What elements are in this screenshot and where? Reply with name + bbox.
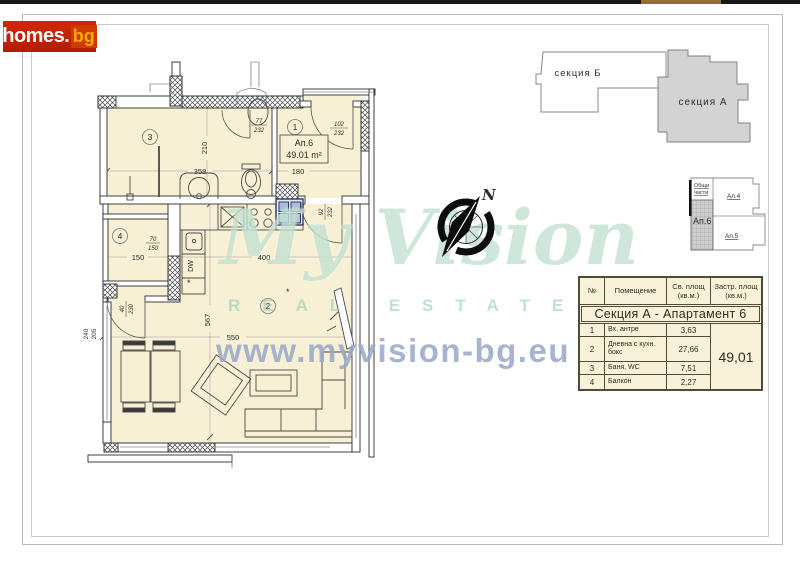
- svg-text:150: 150: [148, 246, 159, 252]
- svg-text:150: 150: [132, 253, 145, 262]
- homes-bg-logo: homes.bg: [3, 21, 96, 52]
- svg-text:40: 40: [120, 305, 126, 312]
- svg-text:92: 92: [319, 208, 325, 215]
- svg-text:567: 567: [203, 314, 212, 327]
- total-area: 49,01: [711, 324, 761, 389]
- svg-text:3: 3: [148, 132, 153, 142]
- row-name: Балкон: [605, 375, 667, 389]
- svg-text:4: 4: [118, 231, 123, 241]
- svg-text:210: 210: [200, 142, 209, 155]
- section-b-shape: [536, 52, 666, 112]
- svg-text:232: 232: [333, 131, 345, 137]
- compass: N: [433, 178, 513, 263]
- col-net-area: Св. площ (кв.м.): [667, 278, 711, 305]
- svg-text:Ап.6: Ап.6: [693, 216, 711, 226]
- col-built-area: Застр. площ (кв.м.): [711, 278, 761, 305]
- section-a-shape: [658, 50, 750, 142]
- svg-text:49.01 m²: 49.01 m²: [286, 150, 322, 160]
- compass-north-label: N: [481, 186, 497, 204]
- floor-plan: 1 2 3 4 Ап.6 49.01 m² 358 210 180 150 40…: [78, 52, 382, 472]
- area-table: № Помещение Св. площ (кв.м.) Застр. площ…: [578, 276, 763, 391]
- area-table-title: Секция А - Апартамент 6: [580, 305, 761, 324]
- svg-text:180: 180: [292, 167, 305, 176]
- svg-text:358: 358: [194, 167, 207, 176]
- row-name: Дневна с кухн. бокс: [605, 337, 667, 362]
- row-num: 1: [580, 324, 605, 337]
- sections-diagram: секция Б секция А: [530, 45, 760, 150]
- col-num: №: [580, 278, 605, 305]
- row-area: 2,27: [667, 375, 711, 389]
- row-name: Вх. антре: [605, 324, 667, 337]
- svg-text:77: 77: [256, 119, 263, 125]
- row-area: 27,66: [667, 337, 711, 362]
- col-room: Помещение: [605, 278, 667, 305]
- svg-text:Ап.6: Ап.6: [295, 138, 313, 148]
- row-area: 3,63: [667, 324, 711, 337]
- svg-text:части: части: [694, 190, 708, 196]
- svg-text:секция Б: секция Б: [555, 68, 602, 79]
- logo-name: homes: [2, 25, 64, 48]
- svg-text:240: 240: [83, 328, 90, 339]
- dishwasher-label: DW: [188, 260, 195, 272]
- logo-dot: .: [64, 25, 70, 48]
- svg-text:102: 102: [334, 122, 345, 128]
- area-table-body: 1 Вх. антре 3,63 2 Дневна с кухн. бокс 2…: [580, 324, 761, 389]
- svg-text:70: 70: [150, 237, 157, 243]
- svg-text:1: 1: [293, 122, 298, 132]
- glass-block-window: [276, 199, 303, 225]
- area-table-header: № Помещение Св. площ (кв.м.) Застр. площ…: [580, 278, 761, 305]
- svg-text:550: 550: [227, 333, 240, 342]
- row-num: 4: [580, 375, 605, 389]
- marker-star: *: [286, 287, 290, 297]
- svg-text:400: 400: [258, 253, 271, 262]
- top-bar-accent: [641, 0, 721, 4]
- marker-star: *: [187, 278, 191, 288]
- unit-label: Ап.6 49.01 m²: [280, 135, 328, 163]
- row-num: 2: [580, 337, 605, 362]
- svg-text:230: 230: [129, 303, 135, 315]
- row-area: 7,51: [667, 362, 711, 375]
- svg-text:Общи: Общи: [694, 183, 709, 189]
- row-num: 3: [580, 362, 605, 375]
- svg-text:2: 2: [266, 301, 271, 311]
- key-plan: Общи части Ап.4 Ап.5 Ап.6: [685, 170, 770, 255]
- svg-text:232: 232: [328, 206, 334, 218]
- top-bar: [0, 0, 800, 4]
- svg-text:Ап.4: Ап.4: [727, 193, 741, 200]
- svg-text:Ап.5: Ап.5: [725, 233, 739, 240]
- row-name: Баня, WC: [605, 362, 667, 375]
- svg-text:205: 205: [91, 328, 98, 339]
- svg-text:232: 232: [253, 128, 265, 134]
- logo-tld: bg: [71, 25, 97, 48]
- page: homes.bg: [0, 0, 800, 569]
- svg-text:секция А: секция А: [678, 97, 727, 108]
